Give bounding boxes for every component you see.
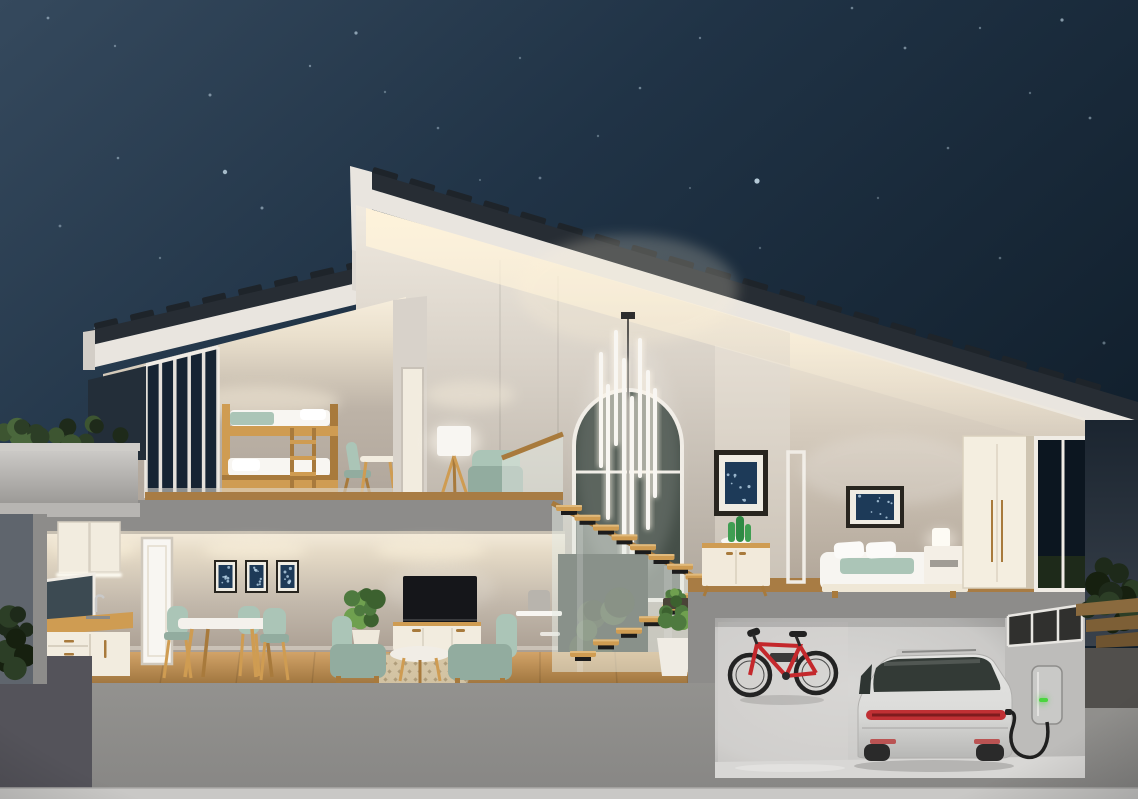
vignette	[0, 0, 1138, 799]
render-stage	[0, 0, 1138, 799]
house-cutaway-render	[0, 0, 1138, 799]
